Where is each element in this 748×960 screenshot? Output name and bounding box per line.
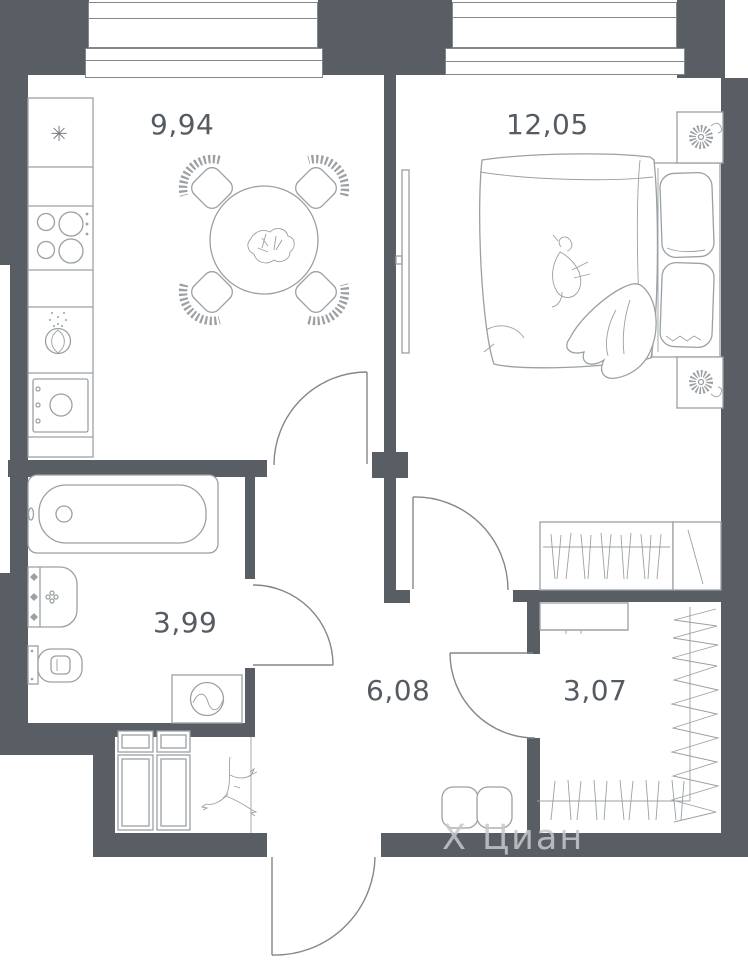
bedroom-area-label: 12,05 — [506, 108, 589, 141]
vent-box-bottom — [677, 357, 723, 408]
toilet — [28, 646, 82, 684]
closet-area-label: 3,07 — [563, 674, 627, 707]
snowflake-icon: ✳ — [50, 122, 68, 146]
closet-door — [450, 653, 535, 738]
kitchen-door — [274, 372, 367, 465]
cian-logo-text: Циан — [482, 818, 584, 858]
hallway-area-label: 6,08 — [366, 674, 430, 707]
bedroom-wardrobe — [540, 522, 721, 590]
bathroom-area-label: 3,99 — [153, 606, 217, 639]
dining-table — [210, 186, 318, 294]
bed — [480, 154, 720, 378]
kitchen-area-label: 9,94 — [150, 108, 214, 141]
floor-plan: ✳ — [0, 0, 748, 960]
tv-icon — [396, 170, 409, 353]
entry-cabinets — [118, 731, 190, 830]
cian-watermark: Х Циан — [442, 818, 584, 858]
washing-machine — [172, 675, 242, 723]
bathroom-door — [253, 585, 333, 665]
entry-door — [272, 857, 375, 955]
bedroom-door — [413, 497, 508, 590]
bathtub — [28, 475, 218, 553]
vent-box-top — [677, 112, 723, 163]
plant-sketch — [202, 757, 257, 816]
closet-shelf — [540, 603, 628, 634]
closet-wardrobe-bottom — [537, 780, 690, 820]
closet-wardrobe-right — [672, 607, 718, 822]
cian-logo-mark: Х — [442, 818, 468, 858]
washbasin — [28, 567, 77, 627]
